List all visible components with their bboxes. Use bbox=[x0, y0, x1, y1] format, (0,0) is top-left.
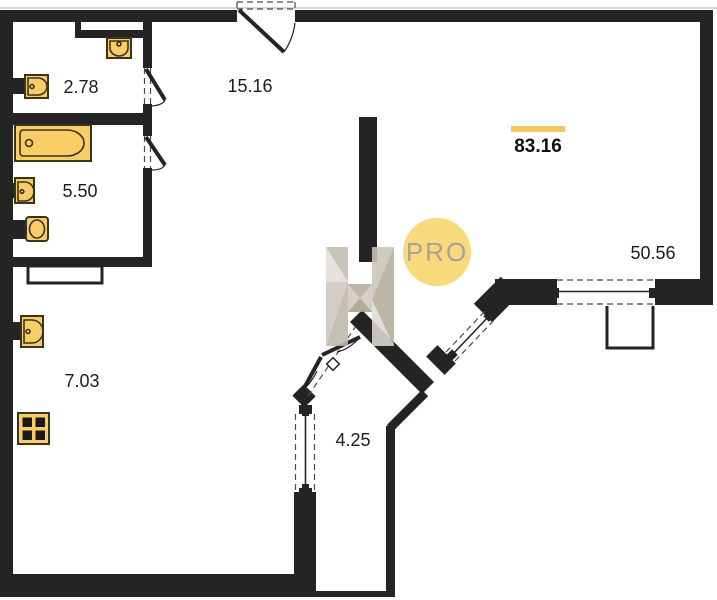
label-room-bathroom: 5.50 bbox=[62, 181, 97, 201]
total-area-value: 83.16 bbox=[514, 136, 562, 157]
door1-leaf bbox=[146, 69, 165, 100]
window2-glass-line bbox=[451, 314, 491, 356]
double-door-leaf-left bbox=[303, 357, 321, 390]
window1-left-jamb bbox=[551, 288, 559, 298]
balcony-outline bbox=[607, 306, 653, 348]
floor-plan-canvas: PRO 83.16 2.78 15.16 5.50 7.03 4.25 50.5… bbox=[0, 0, 717, 600]
wall-right bbox=[700, 10, 713, 305]
wall-left bbox=[0, 10, 13, 597]
door2-leaf bbox=[146, 137, 165, 165]
total-area-highlight-bar bbox=[511, 126, 565, 132]
wall-corridor-left bbox=[294, 492, 316, 597]
wall-top-right bbox=[295, 10, 713, 22]
pro-badge: PRO bbox=[403, 218, 471, 286]
wall-partition-vertical bbox=[359, 117, 377, 262]
door-room-top-left bbox=[145, 68, 166, 106]
label-room-corridor: 4.25 bbox=[335, 430, 370, 450]
sink-hall bbox=[13, 316, 43, 347]
door-bathroom bbox=[145, 136, 166, 170]
label-room-top-left: 2.78 bbox=[63, 77, 98, 97]
sink-room-top-left bbox=[13, 75, 48, 98]
pro-badge-text: PRO bbox=[406, 237, 468, 267]
sink1-wall-tab bbox=[13, 78, 25, 94]
window-corridor bbox=[296, 414, 315, 490]
window-diagonal-living bbox=[446, 309, 496, 361]
washbasin-top bbox=[107, 38, 131, 58]
bathtub bbox=[15, 125, 91, 161]
label-room-hall-top: 15.16 bbox=[227, 76, 272, 96]
entrance-door-leaf bbox=[239, 10, 284, 52]
ventilation-shaft bbox=[28, 266, 102, 283]
wall-step-horizontal bbox=[75, 30, 148, 38]
window2-outer-dash bbox=[455, 318, 496, 361]
floor-plan-drawing: PRO 83.16 2.78 15.16 5.50 7.03 4.25 50.5… bbox=[0, 0, 717, 600]
stove bbox=[18, 413, 49, 444]
window1-right-jamb bbox=[649, 288, 657, 298]
sink3-wall-tab bbox=[13, 322, 21, 340]
door2-swing-arc bbox=[152, 165, 165, 170]
label-room-living: 50.56 bbox=[630, 243, 675, 263]
sink-bathroom bbox=[13, 178, 34, 203]
wall-corridor-right bbox=[386, 426, 395, 597]
wall-between-278-550 bbox=[13, 113, 143, 125]
double-door-handle bbox=[327, 358, 340, 371]
toilet bbox=[13, 217, 48, 241]
window-horizontal-living bbox=[557, 280, 655, 304]
wall-column-mid bbox=[143, 104, 152, 136]
wall-top-left bbox=[0, 10, 237, 22]
wall-corridor-bottom bbox=[316, 591, 395, 597]
toilet-tank bbox=[13, 220, 26, 239]
door1-swing-arc bbox=[152, 100, 165, 106]
wall-window-right-pier bbox=[655, 279, 713, 305]
entrance-door bbox=[237, 2, 295, 52]
wall-diagonal-upper bbox=[483, 286, 510, 313]
wall-bottom-main bbox=[0, 574, 294, 597]
wall-column-upper bbox=[143, 22, 152, 68]
window2-inner-dash bbox=[446, 309, 487, 352]
total-area: 83.16 bbox=[511, 126, 565, 157]
entrance-door-swing-arc bbox=[284, 23, 295, 52]
label-room-hall-left: 7.03 bbox=[64, 371, 99, 391]
wall-column-lower bbox=[143, 168, 152, 262]
wall-diagonal-connector bbox=[390, 393, 425, 428]
